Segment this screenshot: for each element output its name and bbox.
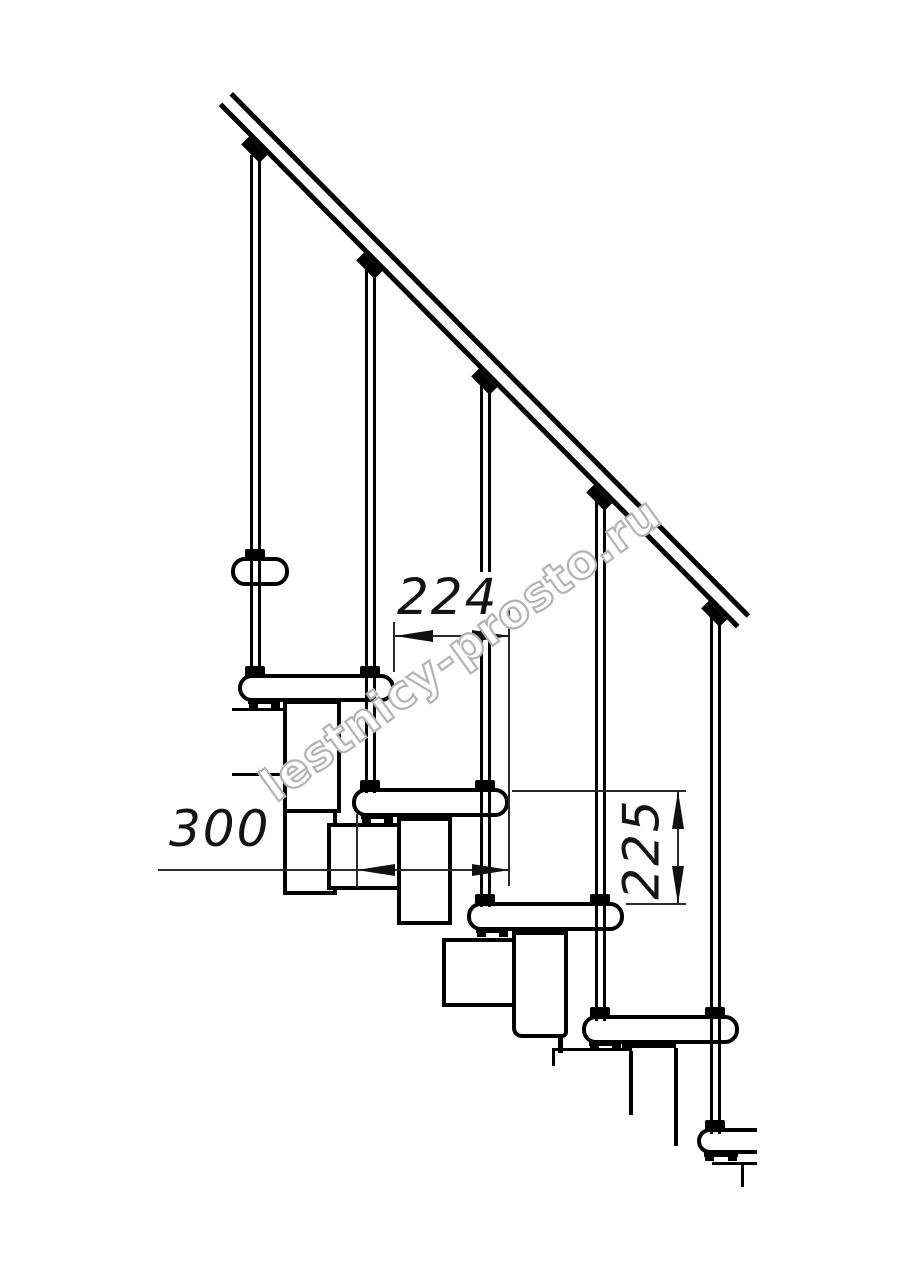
- module-cut-line: [552, 1051, 555, 1066]
- dimension-line-depth: [158, 869, 510, 871]
- baluster-clamp: [360, 780, 380, 791]
- watermark-text: lestnicy-prosto.ru: [218, 463, 703, 837]
- tread-foot-nub: [590, 1046, 599, 1050]
- baluster-clamp: [705, 1007, 725, 1018]
- tread-foot-nub: [477, 933, 486, 937]
- dimension-value-rise: 225: [617, 792, 671, 907]
- baluster-1: [250, 155, 261, 678]
- tread-foot-nub: [384, 819, 393, 823]
- module-connector: [327, 823, 402, 890]
- baluster-clamp: [475, 780, 495, 791]
- baluster-5: [710, 616, 721, 1134]
- module-cut-line: [674, 1048, 678, 1146]
- module-cut-line: [629, 1051, 633, 1115]
- tread-foot-nub: [271, 704, 280, 708]
- module-under-tread-4: [512, 928, 568, 1038]
- baluster-clamp: [245, 549, 265, 560]
- arrowhead-up: [672, 791, 684, 829]
- tread-foot-nub: [728, 1157, 737, 1161]
- tread-foot-nub: [705, 1157, 714, 1161]
- tread-foot-nub: [499, 933, 508, 937]
- module-cut-line: [741, 1164, 744, 1187]
- tread-foot-nub: [249, 704, 258, 708]
- tread-foot-nub: [612, 1046, 621, 1050]
- baluster-clamp: [705, 1120, 725, 1131]
- baluster-clamp: [475, 894, 495, 905]
- tread-6-clipped: [697, 1128, 757, 1154]
- baluster-clamp: [590, 894, 610, 905]
- module-cut-line: [712, 1162, 757, 1165]
- module-connector: [442, 938, 517, 1007]
- technical-drawing-staircase: 224 300 225 lestnicy-prosto.ru: [0, 0, 914, 1280]
- extension-line: [356, 814, 358, 888]
- baluster-clamp: [590, 1007, 610, 1018]
- tread-foot-nub: [362, 819, 371, 823]
- arrowhead-right: [472, 864, 510, 876]
- baluster-clamp: [245, 666, 265, 677]
- arrowhead-down: [672, 866, 684, 904]
